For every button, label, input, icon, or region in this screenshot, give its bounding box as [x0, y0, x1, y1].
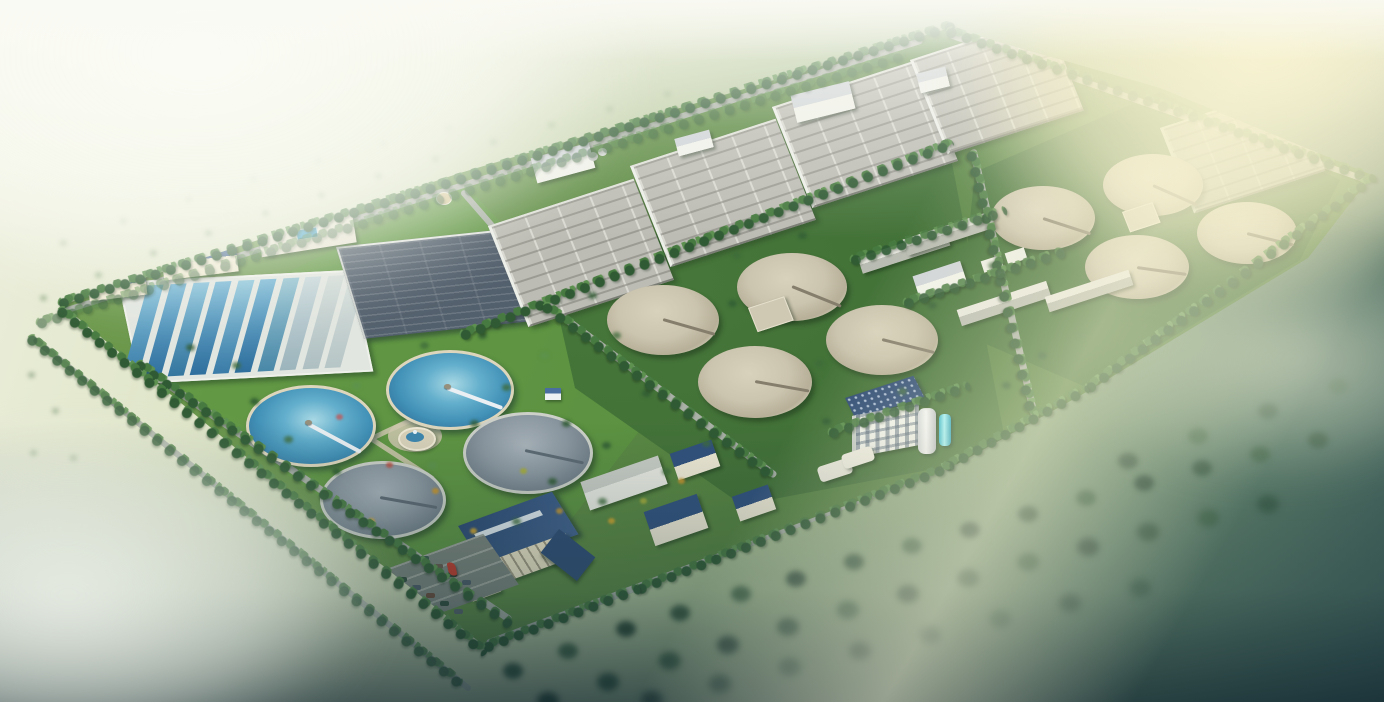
- horizon-haze: [0, 0, 1384, 60]
- plant-aerial-rendering: [0, 0, 1384, 702]
- light-streak: [0, 0, 1384, 702]
